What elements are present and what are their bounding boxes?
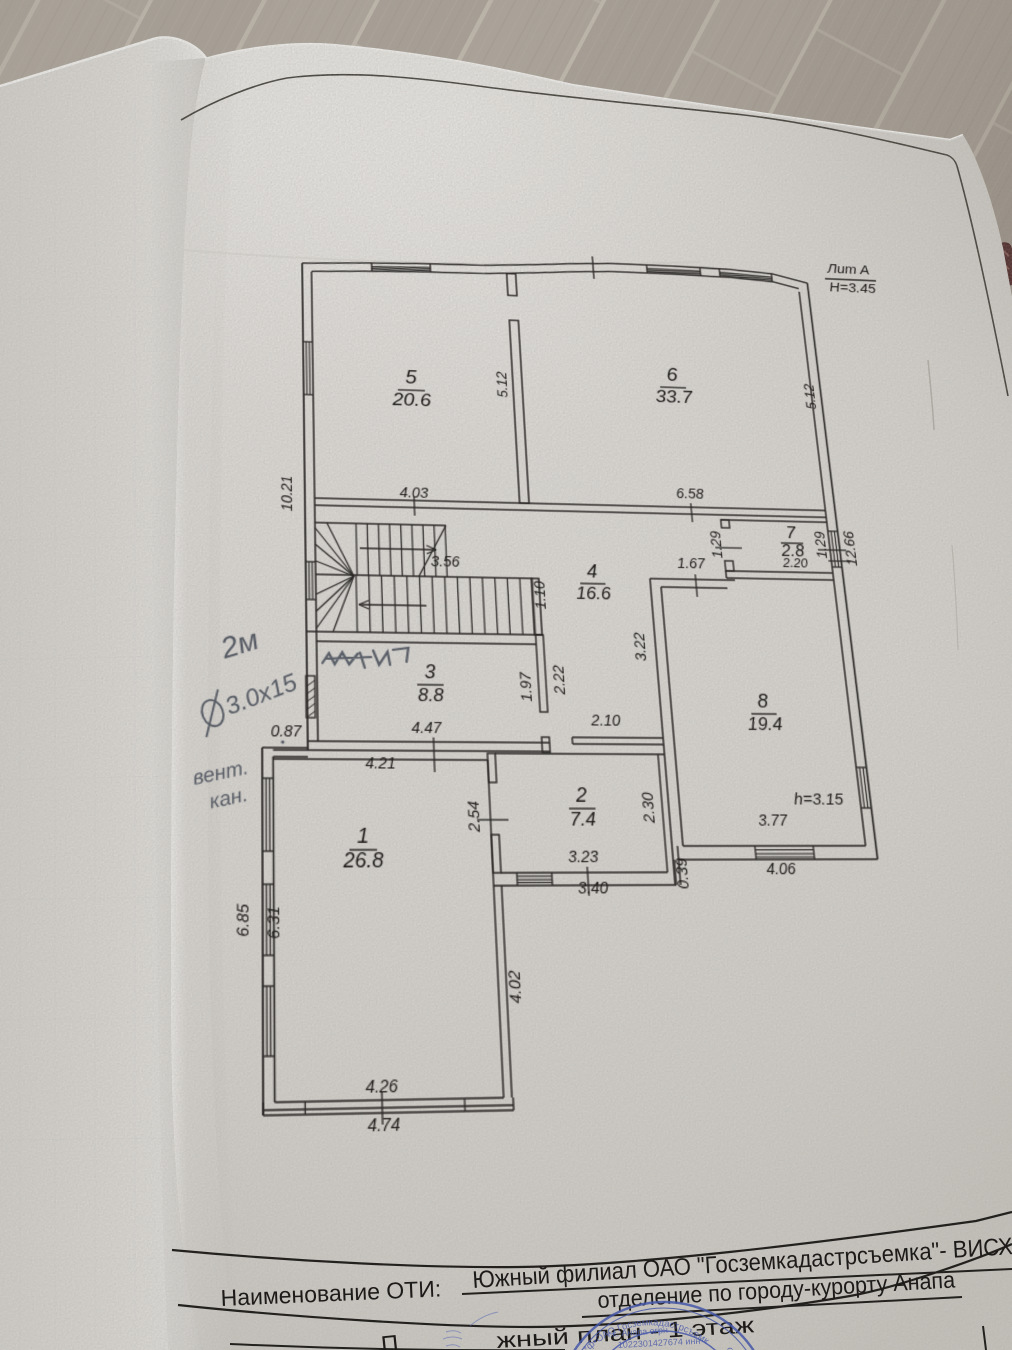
svg-text:ю*н*ф•ОАО Госземкадастрсъемка•: ю*н*ф•ОАО Госземкадастрсъемка•ВИСХАГИ — [0, 0, 712, 1350]
svg-text:П: П — [380, 1330, 400, 1350]
svg-text:Наименование ОТИ:: Наименование ОТИ: — [220, 1275, 442, 1311]
svg-text:отделение по городу: отделение по городу — [0, 0, 759, 1350]
